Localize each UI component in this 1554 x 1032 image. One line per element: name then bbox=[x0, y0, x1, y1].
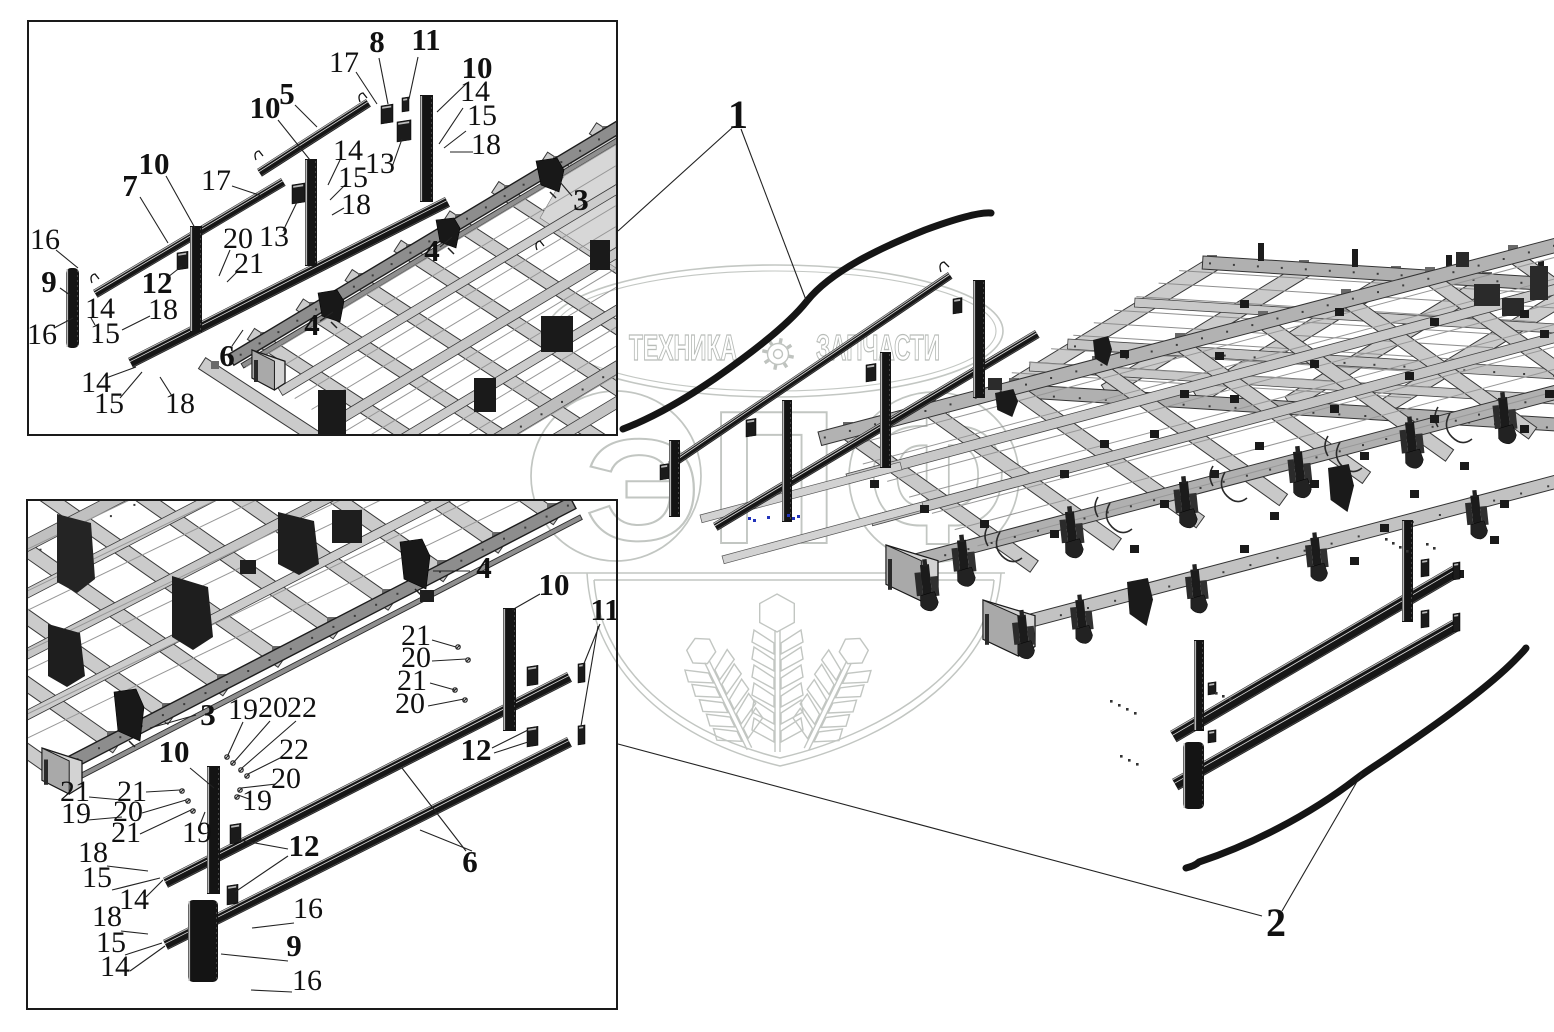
svg-text:10: 10 bbox=[250, 90, 281, 125]
svg-text:16: 16 bbox=[293, 892, 323, 925]
svg-text:21: 21 bbox=[234, 247, 264, 280]
svg-text:ТЕХНИКА: ТЕХНИКА bbox=[629, 327, 737, 368]
svg-text:4: 4 bbox=[476, 550, 492, 585]
svg-text:9: 9 bbox=[41, 264, 57, 299]
svg-text:10: 10 bbox=[139, 146, 170, 181]
svg-text:22: 22 bbox=[287, 691, 317, 724]
svg-text:19: 19 bbox=[182, 816, 212, 849]
svg-text:6: 6 bbox=[462, 844, 478, 879]
svg-text:18: 18 bbox=[471, 128, 501, 161]
svg-text:13: 13 bbox=[365, 147, 395, 180]
svg-text:20: 20 bbox=[395, 687, 425, 720]
svg-text:3: 3 bbox=[200, 697, 216, 732]
svg-text:12: 12 bbox=[461, 732, 492, 767]
svg-text:19: 19 bbox=[242, 784, 272, 817]
svg-text:3: 3 bbox=[573, 182, 589, 217]
svg-text:19: 19 bbox=[228, 693, 258, 726]
svg-text:21: 21 bbox=[111, 816, 141, 849]
svg-text:14: 14 bbox=[100, 950, 130, 983]
svg-text:11: 11 bbox=[590, 592, 619, 627]
svg-text:12: 12 bbox=[289, 828, 320, 863]
svg-text:17: 17 bbox=[201, 164, 231, 197]
svg-text:15: 15 bbox=[82, 861, 112, 894]
svg-text:16: 16 bbox=[27, 318, 57, 351]
svg-text:18: 18 bbox=[148, 293, 178, 326]
svg-text:7: 7 bbox=[122, 168, 138, 203]
svg-text:5: 5 bbox=[279, 76, 295, 111]
svg-text:19: 19 bbox=[61, 797, 91, 830]
svg-text:15: 15 bbox=[90, 317, 120, 350]
svg-text:18: 18 bbox=[341, 188, 371, 221]
svg-text:16: 16 bbox=[30, 223, 60, 256]
svg-text:11: 11 bbox=[411, 22, 440, 57]
svg-text:2: 2 bbox=[1266, 900, 1286, 945]
svg-text:ЗАПЧАСТИ: ЗАПЧАСТИ bbox=[816, 327, 940, 368]
svg-text:10: 10 bbox=[539, 567, 570, 602]
svg-text:1: 1 bbox=[728, 92, 748, 137]
svg-text:16: 16 bbox=[292, 964, 322, 997]
svg-text:4: 4 bbox=[304, 307, 320, 342]
svg-text:8: 8 bbox=[369, 24, 385, 59]
svg-text:6: 6 bbox=[219, 338, 235, 373]
svg-text:20: 20 bbox=[258, 691, 288, 724]
svg-text:20: 20 bbox=[271, 762, 301, 795]
svg-text:17: 17 bbox=[329, 46, 359, 79]
svg-text:14: 14 bbox=[119, 883, 149, 916]
svg-text:18: 18 bbox=[165, 387, 195, 420]
svg-text:15: 15 bbox=[94, 387, 124, 420]
svg-text:9: 9 bbox=[286, 928, 302, 963]
svg-text:П: П bbox=[709, 372, 839, 584]
svg-text:4: 4 bbox=[424, 233, 440, 268]
svg-text:10: 10 bbox=[159, 734, 190, 769]
